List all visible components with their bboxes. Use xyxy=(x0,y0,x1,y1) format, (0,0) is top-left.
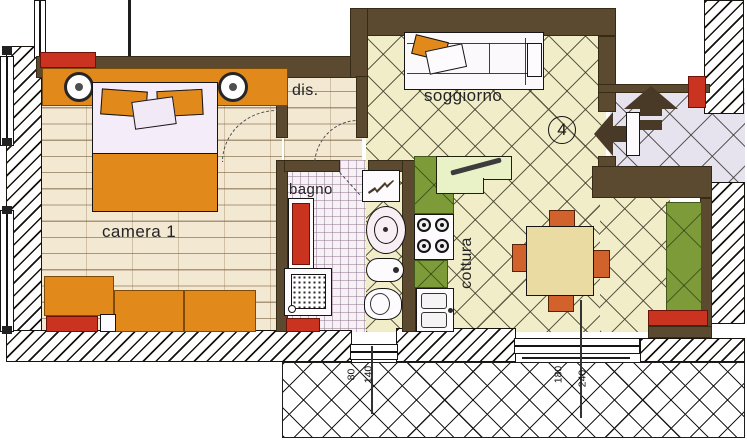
soggiorno-window-sill xyxy=(522,357,630,359)
sofa xyxy=(404,32,544,90)
window-sill xyxy=(2,326,12,334)
entrance-up-arrow-icon xyxy=(624,86,678,130)
soggiorno-window xyxy=(514,338,640,354)
bidet xyxy=(366,258,404,282)
floor-plan: camera 1 dis. bagno soggiorno cottura 4 … xyxy=(0,0,747,445)
dining-chair xyxy=(592,250,610,278)
unit-number-badge: 4 xyxy=(548,116,576,144)
bed-center-pillow xyxy=(131,96,176,130)
dining-radiator xyxy=(648,310,708,326)
nightstand-lamp xyxy=(64,72,94,102)
burner xyxy=(435,239,449,253)
exterior-wall-bottom xyxy=(6,330,352,362)
sink-tap xyxy=(448,308,453,313)
window-frame-top-corner xyxy=(34,0,46,58)
dim-label-bagno-height: 140 xyxy=(363,360,376,390)
wardrobe-right xyxy=(184,290,256,332)
dining-table xyxy=(526,226,594,296)
window-sill xyxy=(2,46,12,55)
camera-window-lower xyxy=(0,210,14,332)
burner xyxy=(417,239,431,253)
sofa-cushion-line xyxy=(489,43,490,73)
wall-entrance-bottom xyxy=(592,166,712,198)
stove xyxy=(414,214,454,260)
exterior-column-top-right xyxy=(704,0,744,114)
room-label-bagno: bagno xyxy=(289,181,333,198)
washbasin-drain xyxy=(383,227,388,232)
washbasin xyxy=(366,206,406,254)
bagno-window xyxy=(350,344,398,360)
kitchen-cabinet-mid xyxy=(414,260,448,288)
nightstand-lamp xyxy=(218,72,248,102)
burner xyxy=(417,218,431,232)
exterior-wall-bottom-right xyxy=(640,338,745,362)
sofa-seat-line xyxy=(407,73,539,74)
window-sill xyxy=(2,206,12,214)
window-frame-line xyxy=(128,0,131,58)
dining-wall-cabinet xyxy=(666,202,702,312)
shower-tray xyxy=(284,268,332,316)
bagno-radiator xyxy=(292,203,310,265)
dining-chair xyxy=(548,294,574,312)
exterior-wall-bottom-mid xyxy=(396,328,516,362)
dim-label-bagno-width: 80 xyxy=(346,360,359,390)
bagno-lower-radiator xyxy=(286,318,320,332)
dim-label-soggiorno-height: 240 xyxy=(577,364,590,394)
camera-radiator xyxy=(46,316,98,332)
room-label-dis: dis. xyxy=(292,82,319,100)
camera-window-radiator xyxy=(40,52,96,68)
sink-basin xyxy=(421,312,447,328)
soggiorno-window-dim-line xyxy=(580,300,582,418)
dim-label-soggiorno-width: 180 xyxy=(553,360,566,390)
wall-soggiorno-right-upper xyxy=(598,36,616,112)
kitchen-counter-return xyxy=(436,178,484,194)
room-label-camera: camera 1 xyxy=(102,222,176,242)
kitchen-sink xyxy=(416,288,454,332)
entrance-left-arrow-icon xyxy=(594,112,626,156)
bagno-cabinet xyxy=(362,170,400,202)
camera-stool xyxy=(100,314,116,332)
entrance-column xyxy=(688,76,706,108)
shower-drain xyxy=(288,305,296,313)
room-label-soggiorno: soggiorno xyxy=(424,86,502,106)
wardrobe-mid xyxy=(114,290,184,332)
sink-basin xyxy=(421,293,447,309)
wall-niche-bottom xyxy=(648,326,712,338)
shower-grate xyxy=(291,274,326,309)
toilet xyxy=(364,288,402,320)
room-label-cottura: cottura xyxy=(458,228,476,298)
wardrobe-left xyxy=(44,276,114,316)
burner xyxy=(435,218,449,232)
sofa-pillow-right xyxy=(527,43,542,77)
camera-window-upper xyxy=(0,56,14,146)
bidet-tap xyxy=(393,267,399,273)
window-sill xyxy=(2,138,12,146)
bed-blanket xyxy=(92,153,218,212)
cabinet-zigzag-icon xyxy=(367,179,395,195)
toilet-seat xyxy=(370,293,390,315)
bed xyxy=(92,82,218,212)
wall-soggiorno-step xyxy=(350,8,368,78)
